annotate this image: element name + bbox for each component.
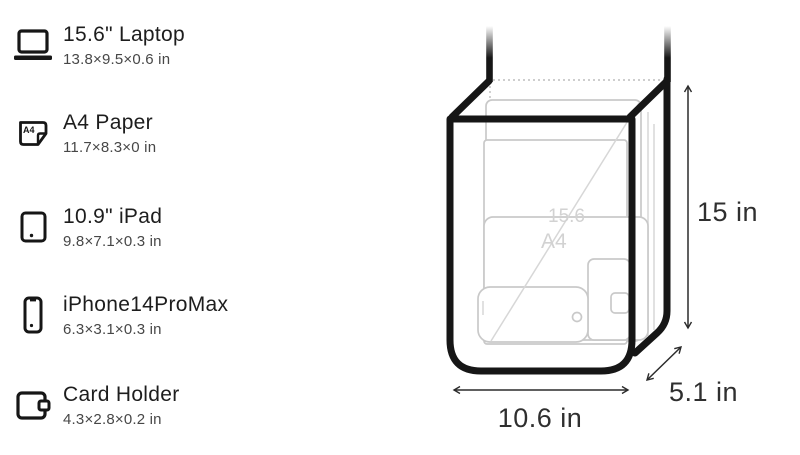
size-comparison-infographic: 15.6" Laptop 13.8×9.5×0.6 in A4 A4 Paper… bbox=[0, 0, 800, 455]
item-title: A4 Paper bbox=[63, 110, 156, 135]
item-list: 15.6" Laptop 13.8×9.5×0.6 in A4 A4 Paper… bbox=[0, 0, 430, 455]
item-dimensions: 11.7×8.3×0 in bbox=[63, 139, 156, 156]
item-title: 15.6" Laptop bbox=[63, 22, 185, 47]
a4-icon-label: A4 bbox=[23, 125, 35, 135]
bag-illustration: 15.6 A4 15 in 10.6 in 5.1 in bbox=[430, 0, 800, 455]
top-right-rim-edge bbox=[630, 81, 667, 117]
wallet-icon bbox=[10, 390, 56, 421]
list-item-a4-paper: A4 A4 Paper 11.7×8.3×0 in bbox=[10, 110, 156, 156]
width-dimension-label: 10.6 in bbox=[498, 403, 583, 433]
strap-left bbox=[486, 26, 493, 82]
a4-paper-icon: A4 bbox=[10, 120, 56, 147]
list-item-ipad: 10.9" iPad 9.8×7.1×0.3 in bbox=[10, 204, 162, 250]
tablet-icon bbox=[10, 211, 56, 243]
item-dimensions: 9.8×7.1×0.3 in bbox=[63, 233, 162, 250]
laptop-diagonal-label: 15.6 bbox=[548, 206, 585, 227]
a4-sheet-label: A4 bbox=[541, 230, 567, 253]
item-title: iPhone14ProMax bbox=[63, 292, 228, 317]
height-dimension-label: 15 in bbox=[697, 197, 758, 227]
laptop-icon bbox=[10, 28, 56, 62]
smartphone-icon bbox=[10, 296, 56, 334]
list-item-iphone: iPhone14ProMax 6.3×3.1×0.3 in bbox=[10, 292, 228, 338]
item-title: 10.9" iPad bbox=[63, 204, 162, 229]
strap-right bbox=[664, 26, 671, 82]
item-title: Card Holder bbox=[63, 382, 180, 407]
bag-contents-ghosts: 15.6 A4 bbox=[478, 100, 654, 344]
item-dimensions: 6.3×3.1×0.3 in bbox=[63, 321, 228, 338]
depth-dimension-label: 5.1 in bbox=[669, 377, 738, 407]
list-item-card-holder: Card Holder 4.3×2.8×0.2 in bbox=[10, 382, 180, 428]
list-item-laptop: 15.6" Laptop 13.8×9.5×0.6 in bbox=[10, 22, 185, 68]
iphone-ghost-outline bbox=[478, 287, 588, 342]
top-left-rim-edge bbox=[452, 81, 489, 117]
cardholder-snap-detail bbox=[611, 293, 629, 313]
depth-arrow bbox=[647, 347, 681, 380]
item-dimensions: 13.8×9.5×0.6 in bbox=[63, 51, 185, 68]
item-dimensions: 4.3×2.8×0.2 in bbox=[63, 411, 180, 428]
